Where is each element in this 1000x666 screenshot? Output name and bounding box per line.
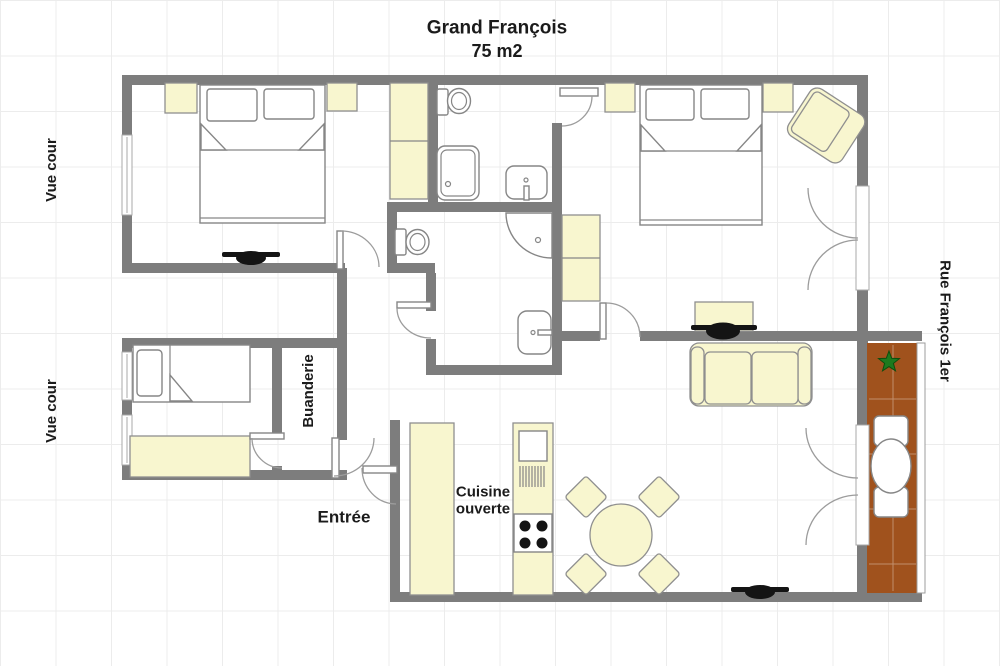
- double-bed: [200, 85, 325, 223]
- ceiling-light: [222, 251, 280, 265]
- pillow: [646, 89, 694, 120]
- sofa: [690, 343, 812, 406]
- french-windows: [808, 188, 858, 290]
- dining-table: [590, 504, 652, 566]
- single-bed: [133, 345, 250, 402]
- seat-cushion: [705, 352, 751, 404]
- corner-shower: [506, 213, 552, 258]
- label-open-kitchen: Cuisine ouverte: [456, 485, 510, 518]
- bedroom-2-door: [600, 303, 640, 339]
- sink: [506, 166, 547, 200]
- pillow: [207, 89, 257, 121]
- wc-room: [395, 213, 552, 354]
- label-courtyard-view-bottom: Vue cour: [44, 379, 61, 443]
- bathroom: [437, 89, 547, 201]
- pillow: [137, 350, 162, 396]
- vent-grill: [520, 466, 544, 487]
- balcony-door-opening: [856, 425, 869, 545]
- balcony-railing: [917, 343, 925, 593]
- armchair: [784, 85, 868, 167]
- pillow: [701, 89, 749, 119]
- dining-chair: [638, 476, 680, 518]
- nightstand: [327, 83, 357, 111]
- label-entrance: Entrée: [318, 509, 371, 528]
- sink: [518, 311, 552, 354]
- label-open-kitchen-line1: Cuisine: [456, 485, 510, 502]
- toilet: [437, 89, 471, 116]
- double-bed: [640, 85, 762, 225]
- laundry-door: [250, 433, 284, 468]
- balcony-table: [871, 439, 911, 493]
- dining-set: [565, 476, 680, 595]
- label-courtyard-view-top: Vue cour: [44, 138, 61, 202]
- balcony-doors: [806, 428, 858, 545]
- plan-title: Grand François: [427, 19, 567, 40]
- small-bedroom: [130, 345, 250, 477]
- seat-cushion: [752, 352, 798, 404]
- nightstand: [165, 83, 197, 113]
- toilet: [395, 229, 429, 255]
- label-laundry-room: Buanderie: [301, 354, 318, 427]
- sideboard: [130, 436, 250, 477]
- kitchen-counter: [410, 423, 454, 595]
- plan-area: 75 m2: [471, 42, 522, 62]
- nightstand: [763, 83, 793, 112]
- bedroom-2: [562, 83, 868, 340]
- balcony: [867, 343, 925, 593]
- wc-door: [397, 302, 431, 338]
- nightstand: [605, 83, 635, 112]
- pillow: [264, 89, 314, 119]
- living-room: [565, 343, 812, 599]
- bathroom-door: [560, 88, 598, 126]
- stove: [514, 514, 552, 552]
- dining-chair: [638, 553, 680, 595]
- shower-tray: [437, 146, 479, 200]
- fridge: [519, 431, 547, 461]
- label-open-kitchen-line2: ouverte: [456, 501, 510, 518]
- floor-plan: Grand François 75 m2 Vue cour Vue cour R…: [0, 0, 1000, 666]
- label-street: Rue François 1er: [936, 260, 953, 382]
- bedroom-1-door: [337, 231, 379, 269]
- floor-plan-drawing: [0, 0, 1000, 666]
